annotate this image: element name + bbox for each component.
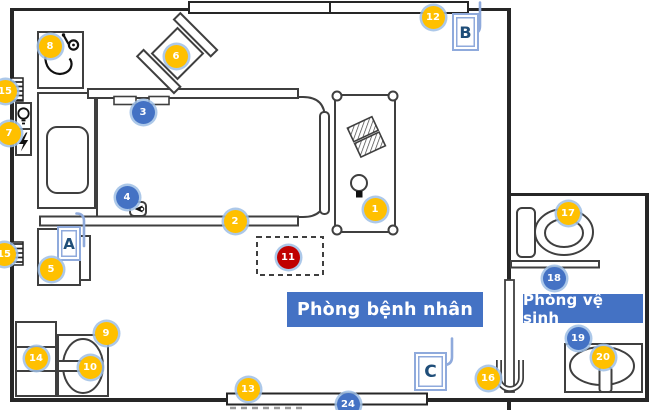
marker-18: 18 bbox=[543, 267, 566, 290]
marker-14: 14 bbox=[25, 347, 48, 370]
wall-right-patient-room bbox=[507, 8, 511, 196]
marker-17: 17 bbox=[557, 202, 580, 225]
bed-control-box bbox=[114, 97, 136, 105]
marker-2: 2 bbox=[224, 210, 247, 233]
table-leg bbox=[333, 92, 342, 101]
floor-plan: Phòng bệnh nhân Phòng vệ sinh A B C 1234… bbox=[0, 0, 660, 410]
marker-7: 7 bbox=[0, 122, 21, 145]
marker-12: 12 bbox=[422, 6, 445, 29]
marker-3: 3 bbox=[132, 101, 155, 124]
wall-stub-bottom bbox=[507, 398, 511, 410]
marker-20: 20 bbox=[592, 346, 615, 369]
marker-5: 5 bbox=[40, 258, 63, 281]
bed-rail-bottom bbox=[40, 217, 298, 226]
bathroom-label: Phòng vệ sinh bbox=[523, 294, 643, 323]
table-leg bbox=[389, 92, 398, 101]
wall-bathroom-left bbox=[507, 196, 511, 282]
marker-19: 19 bbox=[567, 327, 590, 350]
marker-13: 13 bbox=[237, 378, 260, 401]
bathroom-door-leaf bbox=[505, 280, 514, 392]
wall-bathroom-top bbox=[507, 193, 649, 196]
marker-16: 16 bbox=[477, 367, 500, 390]
marker-1: 1 bbox=[364, 198, 387, 221]
marker-4: 4 bbox=[116, 186, 139, 209]
bed-control-box bbox=[149, 97, 169, 105]
marker-15: 15 bbox=[0, 80, 17, 103]
toilet bbox=[517, 208, 593, 257]
wall-bathroom-right bbox=[645, 193, 649, 402]
bed-pillow bbox=[47, 127, 88, 193]
marker-8: 8 bbox=[39, 35, 62, 58]
door-label-a: A bbox=[57, 226, 81, 261]
marker-24: 24 bbox=[337, 393, 360, 410]
door-label-c: C bbox=[414, 352, 447, 391]
marker-6: 6 bbox=[165, 45, 188, 68]
table-leg bbox=[333, 226, 342, 235]
table-leg bbox=[389, 226, 398, 235]
patient-room-label: Phòng bệnh nhân bbox=[287, 292, 483, 327]
toilet-tank bbox=[517, 208, 535, 257]
wall-left bbox=[10, 8, 14, 402]
door-label-b: B bbox=[452, 13, 479, 51]
marker-11: 11 bbox=[277, 246, 300, 269]
patient-bed bbox=[38, 89, 329, 226]
faucet-icon bbox=[600, 367, 612, 392]
marker-10: 10 bbox=[79, 356, 102, 379]
marker-9: 9 bbox=[95, 322, 118, 345]
bed-footboard bbox=[320, 112, 329, 214]
